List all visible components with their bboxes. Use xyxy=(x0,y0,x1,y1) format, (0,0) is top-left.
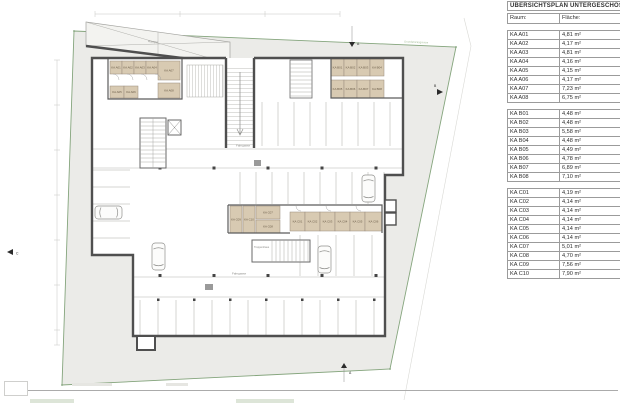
bike-rack-hatch xyxy=(187,65,223,97)
room-cell: KA A08 xyxy=(507,93,560,103)
storage-room-label: KA B01 xyxy=(333,66,343,70)
storage-room-label: KA B07 xyxy=(359,87,369,91)
area-cell: 7,90 m² xyxy=(559,269,620,279)
section-marker-letter: C xyxy=(16,252,19,256)
storage-room-label: KA A04 xyxy=(147,66,157,70)
storage-room-label: KA A07 xyxy=(164,69,174,73)
storage-room-label: KA C07 xyxy=(263,211,273,215)
table-row: KA C107,90 m² xyxy=(507,269,620,279)
shaft-protrusion xyxy=(385,213,396,225)
stair-label: Treppenhaus xyxy=(254,245,270,249)
room-cell: KA C10 xyxy=(507,269,560,279)
area-column-header: Fläche: xyxy=(559,13,620,24)
storage-room-label: KA A08 xyxy=(164,89,174,93)
storage-room-label: KA C01 xyxy=(293,220,303,224)
area-table: ÜBERSICHTSPLAN UNTERGESCHOSS Raum: Fläch… xyxy=(507,1,620,279)
car-icon xyxy=(152,243,165,270)
storage-room-label: KA B08 xyxy=(372,87,382,91)
table-header: Raum: Fläche: xyxy=(507,13,620,24)
room-cell: KA B08 xyxy=(507,172,560,182)
footer-mark xyxy=(236,399,294,403)
table-group: KA A014,81 m²KA A024,17 m²KA A034,81 m²K… xyxy=(507,30,620,103)
storage-room-label: KA B05 xyxy=(333,87,343,91)
storage-room-label: KA C05 xyxy=(353,220,363,224)
table-row: KA B087,10 m² xyxy=(507,172,620,182)
storage-room-label: KA A05 xyxy=(112,90,122,94)
floor-plan-drawing: Grundstücksgrenze Rampe Fahrgasse Fahrga… xyxy=(0,0,505,410)
boundary-label: Grundstücksgrenze xyxy=(404,40,429,45)
room-column-header: Raum: xyxy=(507,13,560,24)
storage-room-label: KA A02 xyxy=(123,66,133,70)
footer-mark xyxy=(72,383,112,386)
storage-room-label: KA A03 xyxy=(135,66,145,70)
floor-plan-sheet: Grundstücksgrenze Rampe Fahrgasse Fahrga… xyxy=(0,0,620,410)
stair-core xyxy=(290,60,312,98)
section-marker-icon xyxy=(7,249,13,255)
storage-room-label: KA C06 xyxy=(369,220,379,224)
car-icon xyxy=(362,175,375,202)
storage-room-label: KA B04 xyxy=(372,66,382,70)
storage-room-label: KA C10 xyxy=(244,218,254,222)
table-row: KA A086,75 m² xyxy=(507,93,620,103)
car-icon xyxy=(318,246,331,273)
storage-room-label: KA B06 xyxy=(346,87,356,91)
storage-room-label: KA B02 xyxy=(346,66,356,70)
area-cell: 7,10 m² xyxy=(559,172,620,182)
storage-room-label: KA C09 xyxy=(231,218,241,222)
car-icon xyxy=(95,206,122,219)
area-cell: 6,75 m² xyxy=(559,93,620,103)
storage-room-label: KA C08 xyxy=(263,225,273,229)
footer-corner-box xyxy=(4,381,28,396)
storage-room-label: KA C02 xyxy=(308,220,318,224)
exit-stair-protrusion xyxy=(137,336,155,350)
storage-room-label: KA C03 xyxy=(323,220,333,224)
stair-core xyxy=(252,240,310,262)
storage-room-label: KA A01 xyxy=(111,66,121,70)
shaft-protrusion xyxy=(385,200,396,212)
footer-mark xyxy=(166,383,188,386)
footer-mark xyxy=(30,399,74,403)
storage-room-label: KA B03 xyxy=(359,66,369,70)
table-title: ÜBERSICHTSPLAN UNTERGESCHOSS xyxy=(507,1,620,11)
table-group: KA C014,19 m²KA C024,14 m²KA C034,14 m²K… xyxy=(507,188,620,279)
footer-divider xyxy=(28,390,618,391)
storage-room-label: KA C04 xyxy=(338,220,348,224)
table-groups: KA A014,81 m²KA A024,17 m²KA A034,81 m²K… xyxy=(507,30,620,279)
section-marker-letter: A xyxy=(349,371,352,375)
lane-label: Fahrgasse xyxy=(232,272,247,276)
table-group: KA B014,48 m²KA B024,48 m²KA B035,58 m²K… xyxy=(507,109,620,182)
storage-room-label: KA A06 xyxy=(126,90,136,94)
